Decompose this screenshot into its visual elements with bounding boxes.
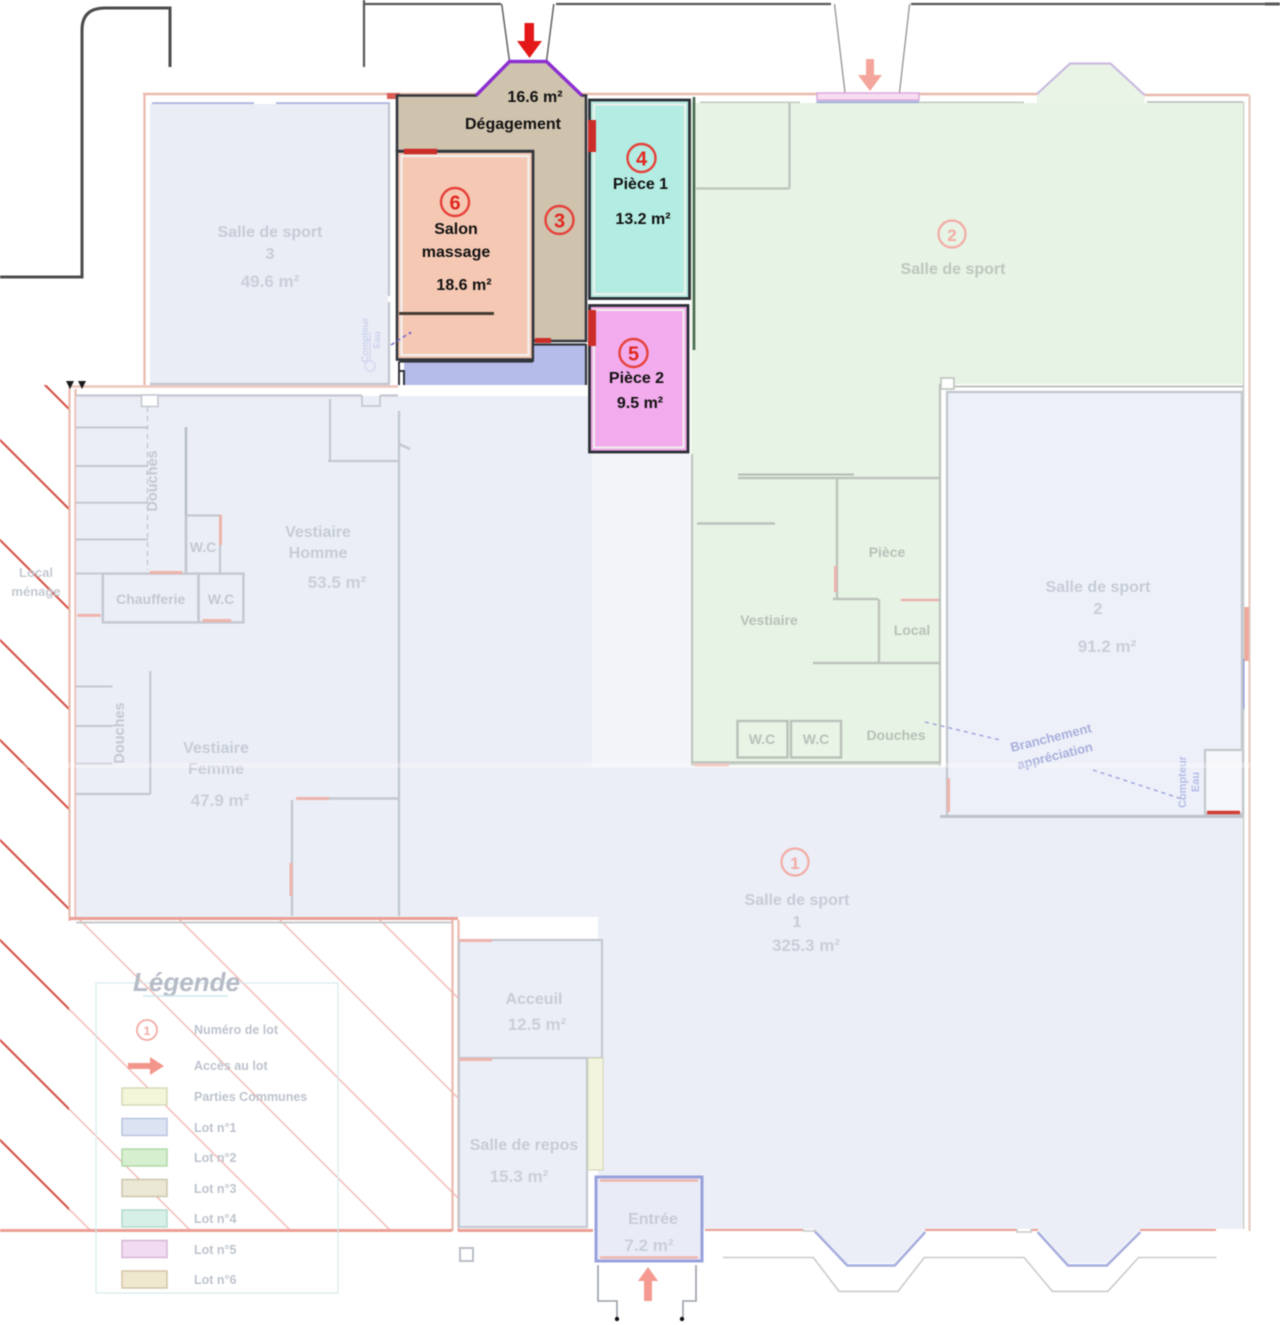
svg-text:7.2 m²: 7.2 m² <box>624 1236 673 1255</box>
svg-text:Homme: Homme <box>289 545 348 562</box>
svg-text:Eau: Eau <box>1190 772 1202 792</box>
svg-text:13.2 m²: 13.2 m² <box>615 211 670 228</box>
svg-text:3: 3 <box>266 246 275 263</box>
svg-text:Vestiaire: Vestiaire <box>285 524 351 541</box>
svg-text:6: 6 <box>449 193 460 215</box>
svg-text:Numéro de lot: Numéro de lot <box>194 1023 279 1037</box>
svg-text:Pièce 1: Pièce 1 <box>613 176 668 193</box>
svg-text:Salle de repos: Salle de repos <box>470 1137 579 1154</box>
svg-text:12.5 m²: 12.5 m² <box>508 1015 567 1034</box>
svg-text:Salon: Salon <box>434 221 478 238</box>
svg-text:Compteur: Compteur <box>360 317 371 362</box>
svg-text:3: 3 <box>554 211 565 233</box>
svg-text:Lot n°1: Lot n°1 <box>194 1121 237 1135</box>
svg-text:5: 5 <box>628 344 639 366</box>
svg-text:Salle de sport: Salle de sport <box>901 261 1007 278</box>
svg-text:Salle de sport: Salle de sport <box>745 892 851 909</box>
svg-text:Vestiaire: Vestiaire <box>183 740 249 757</box>
svg-text:49.6 m²: 49.6 m² <box>241 272 300 291</box>
svg-text:W.C: W.C <box>190 539 216 555</box>
svg-text:Salle de sport: Salle de sport <box>1046 579 1152 596</box>
svg-text:2: 2 <box>1094 601 1103 618</box>
svg-text:91.2 m²: 91.2 m² <box>1078 637 1137 656</box>
svg-text:Entrée: Entrée <box>628 1211 678 1228</box>
svg-text:massage: massage <box>422 244 491 261</box>
svg-text:Acceuil: Acceuil <box>506 991 563 1008</box>
svg-text:Chaufferie: Chaufferie <box>116 591 185 607</box>
svg-text:Pièce 2: Pièce 2 <box>609 370 664 387</box>
svg-text:2: 2 <box>947 226 956 245</box>
svg-text:Légende: Légende <box>133 967 240 997</box>
svg-text:9.5 m²: 9.5 m² <box>617 395 663 412</box>
svg-text:16.6 m²: 16.6 m² <box>507 89 562 106</box>
svg-text:Vestiaire: Vestiaire <box>740 612 798 628</box>
svg-text:Douches: Douches <box>145 450 161 511</box>
svg-text:W.C: W.C <box>803 731 829 747</box>
svg-text:325.3 m²: 325.3 m² <box>772 936 840 955</box>
svg-text:47.9 m²: 47.9 m² <box>191 791 250 810</box>
svg-text:1: 1 <box>144 1024 151 1038</box>
svg-text:Lot n°4: Lot n°4 <box>194 1212 237 1226</box>
svg-text:Lot n°3: Lot n°3 <box>194 1182 237 1196</box>
svg-text:Pièce: Pièce <box>869 544 906 560</box>
svg-text:Douches: Douches <box>112 702 128 763</box>
svg-text:Parties Communes: Parties Communes <box>194 1090 307 1104</box>
svg-text:Local: Local <box>19 565 53 580</box>
svg-text:1: 1 <box>793 914 802 931</box>
svg-text:Accès au lot: Accès au lot <box>194 1059 268 1073</box>
svg-text:15.3 m²: 15.3 m² <box>490 1167 549 1186</box>
svg-text:Lot n°6: Lot n°6 <box>194 1273 237 1287</box>
svg-text:4: 4 <box>636 149 648 171</box>
svg-text:Salle de sport: Salle de sport <box>218 224 324 241</box>
svg-text:53.5 m²: 53.5 m² <box>308 573 367 592</box>
svg-text:W.C: W.C <box>208 591 234 607</box>
svg-text:Douches: Douches <box>866 727 925 743</box>
svg-text:ménage: ménage <box>11 584 60 599</box>
svg-text:Lot n°5: Lot n°5 <box>194 1243 237 1257</box>
svg-text:18.6 m²: 18.6 m² <box>436 277 491 294</box>
svg-text:Eau: Eau <box>372 331 383 349</box>
svg-text:Local: Local <box>894 622 931 638</box>
svg-text:1: 1 <box>790 854 799 873</box>
svg-text:W.C: W.C <box>749 731 775 747</box>
svg-text:Dégagement: Dégagement <box>465 116 562 133</box>
svg-text:Lot n°2: Lot n°2 <box>194 1151 237 1165</box>
